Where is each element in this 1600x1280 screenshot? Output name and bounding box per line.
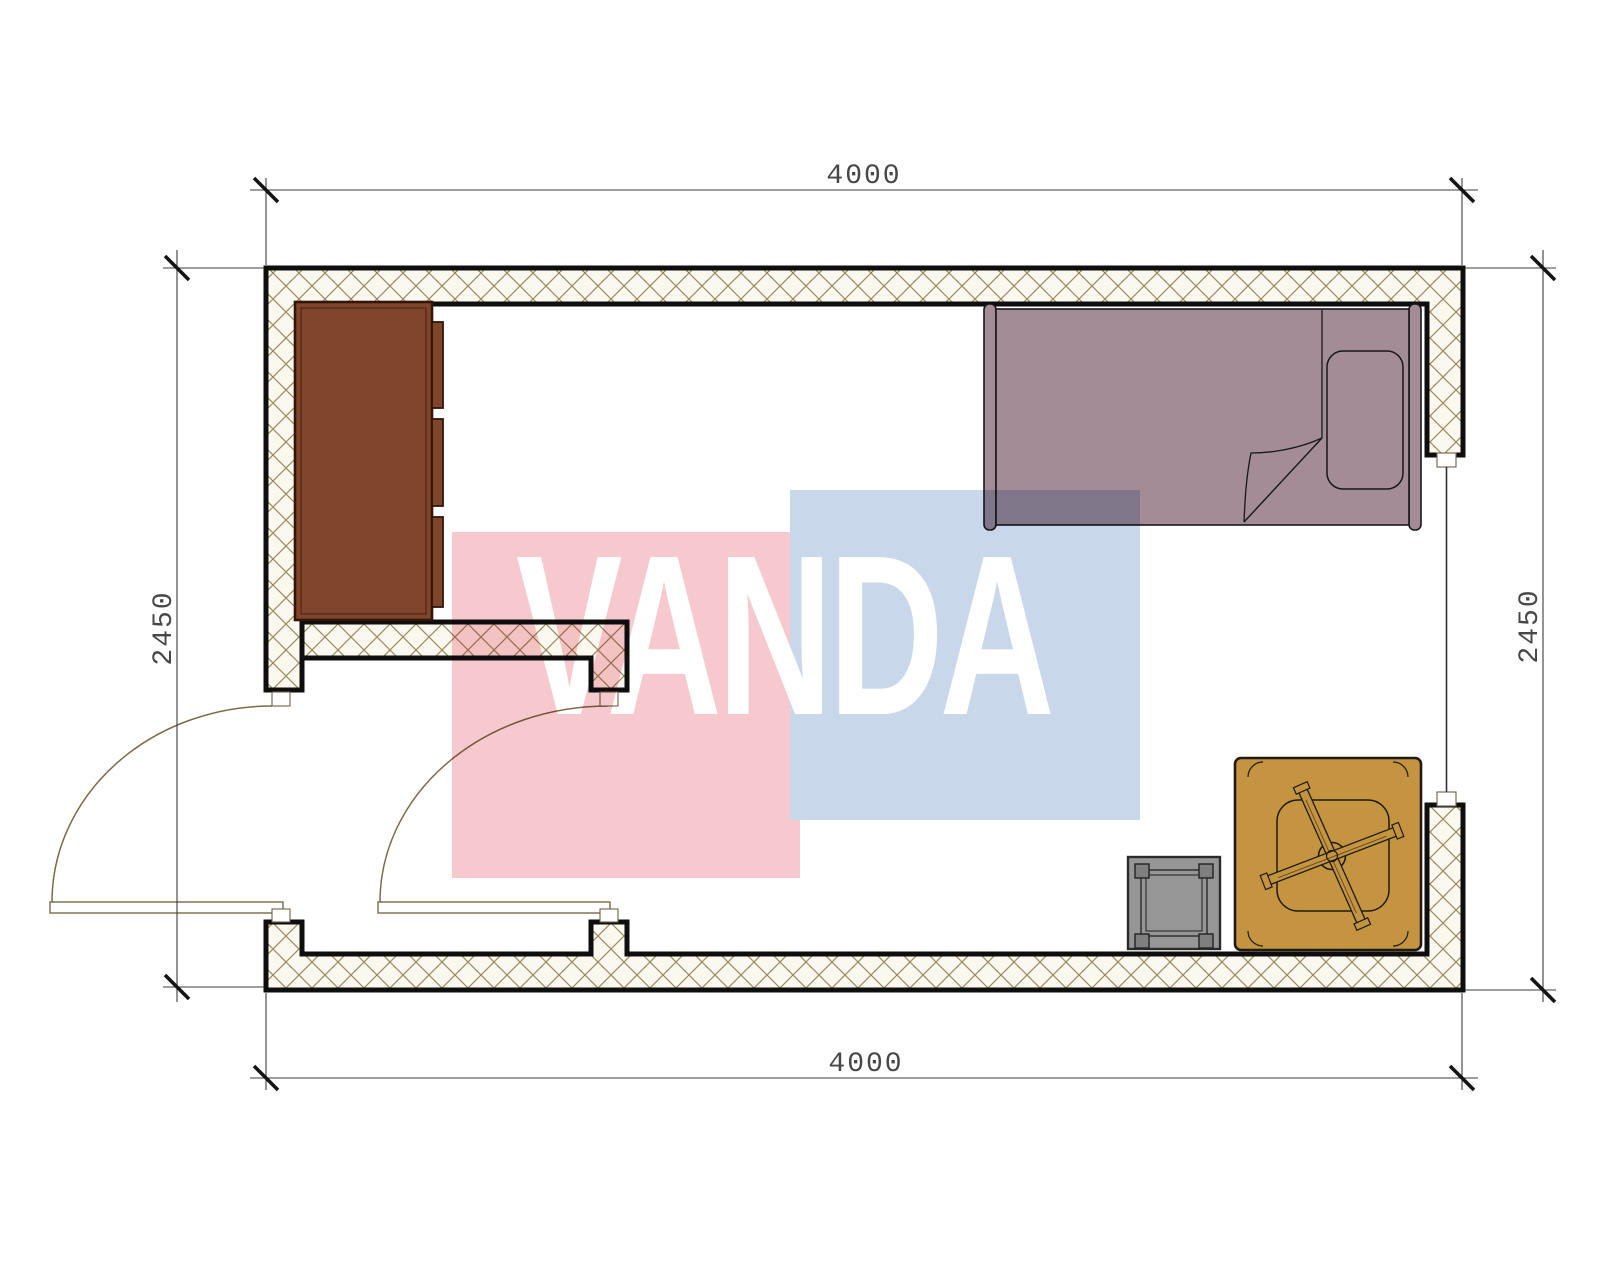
window-jamb-top — [1437, 453, 1456, 467]
wardrobe-door-front-3 — [432, 517, 443, 607]
entry-door-leaf — [50, 902, 283, 913]
wardrobe-cabinet — [295, 302, 443, 620]
wall-interior-vestibule — [302, 622, 627, 690]
dim-label-bottom: 4000 — [828, 1049, 903, 1080]
stool — [1128, 857, 1220, 949]
entry-door-swing-arc — [52, 706, 272, 902]
wardrobe-body — [295, 302, 432, 620]
wardrobe-door-front-2 — [432, 419, 443, 506]
wardrobe-door-front-1 — [432, 322, 443, 408]
interior-door-swing-arc — [380, 706, 608, 902]
floor-plan-page: 4000 4000 2450 2450 VANDA — [0, 0, 1600, 1280]
door-jamb-blocks — [272, 692, 618, 922]
window — [1437, 453, 1456, 806]
single-bed — [984, 304, 1421, 530]
interior-door-leaf — [378, 902, 610, 913]
window-jamb-bottom — [1437, 792, 1456, 806]
bed-pillow — [1327, 351, 1403, 489]
doors — [50, 692, 618, 922]
dim-label-left: 2450 — [149, 590, 180, 665]
dim-label-right: 2450 — [1515, 588, 1546, 663]
bed-headboard — [984, 304, 996, 530]
floor-plan-canvas: 4000 4000 2450 2450 — [0, 0, 1600, 1280]
dim-label-top: 4000 — [826, 161, 901, 192]
square-table — [1235, 758, 1421, 950]
bed-footboard — [1409, 304, 1421, 530]
